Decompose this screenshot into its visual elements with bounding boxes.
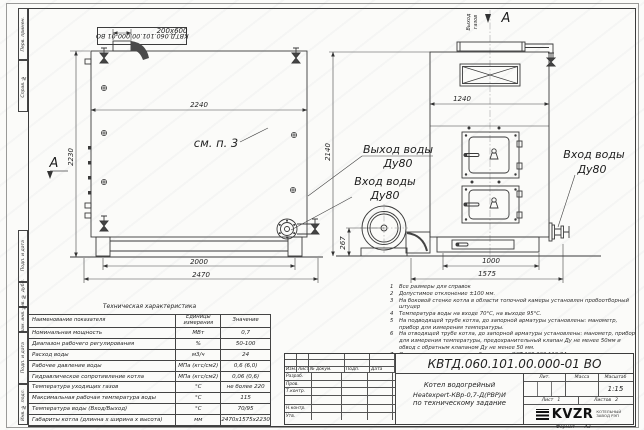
title-block: КВТД.060.101.00.000-01 ВО Изм.Лист № док… [284,353,634,425]
note-item: 3На боковой стенке котла в области топоч… [390,298,636,312]
gas-outlet-label-2: газов [473,15,479,29]
dim-2470: 2470 [192,271,210,279]
fan-icon [360,204,430,256]
dim-2000: 2000 [190,258,208,266]
role-row-utv: Утв. [285,413,395,421]
spec-row: Гидравлическое сопротивление котлаМПа (к… [29,372,271,383]
lower-door-icon [462,186,522,223]
spec-table-title: Техническая характеристика [28,302,271,314]
upper-door-icon [462,132,522,178]
dim-1000: 1000 [482,257,500,265]
bolt-dots [468,127,501,184]
dimensions [70,29,575,283]
dim-2230: 2230 [67,148,75,166]
spec-row: Рабочее давление водыМПа (кгс/см2)0,6 (6… [29,361,271,372]
revision-header-row: Изм.Лист № докум.Подп. Дата [285,367,395,374]
scale-value: 1:15 [599,382,632,396]
section-arrow-left [47,171,53,179]
base-frame [437,237,539,252]
water-in-right-dn: Ду80 [576,163,606,176]
water-in-left-dn: Ду80 [369,189,399,202]
section-arrow-top [485,14,491,23]
dim-1240: 1240 [453,95,471,103]
role-row-razrab: Разраб. [285,373,395,381]
revision-table: Изм.Лист № докум.Подп. Дата Разраб. Пров… [285,354,395,424]
flange-icon [277,219,319,239]
section-letter-top: А [501,11,511,26]
role-row-tkontr: Т.контр. [285,388,395,396]
see-note-label: см. п. 3 [194,136,238,150]
notes-list: 1Все размеры для справок 2Допустимое отк… [390,284,636,358]
tap-icon [547,53,555,66]
kvzr-logo-mark-icon [536,409,549,420]
dim-nozzle: 200х600 [157,27,188,35]
water-in-left-leader [291,197,352,230]
note-item: 4Температура воды на входе 70°С, на выхо… [390,311,636,318]
doc-number: КВТД.060.101.00.000-01 ВО [395,354,633,374]
gas-outlet-label-1: Выход [466,13,472,30]
note-item: 6На отводящей трубе котла, до запорной а… [390,331,636,351]
spec-row: Расход водым3/ч24 [29,350,271,361]
spec-row: Диапазон рабочего регулирования%50-100 [29,339,271,350]
dim-1575: 1575 [478,270,496,278]
spec-row: Температура уходящих газов°Сне более 220 [29,382,271,393]
water-in-left-label: Вход воды [354,175,416,188]
note-item: 2Допустимое отклонение ±100 мм. [390,291,636,298]
company-logo: KVZR КОТЕЛЬНЫЙЗАВОД РЭП [524,405,633,423]
title-block-right: Лит. Масса Масштаб 1:15 Лист1 Листов2 KV… [523,374,633,424]
water-in-right-leader [558,175,575,227]
see-note-leader [240,128,268,142]
kvzr-logo-text: KVZR [552,407,594,422]
spec-header-row: Наименование показателяЕдиницы измерения… [29,315,271,328]
inlet-flange-icon [549,223,569,241]
spec-row: Номинальная мощностьМВт0,7 [29,328,271,339]
water-out-dn: Ду80 [382,157,412,170]
drawing-sheet: Перв. примен. Справ. № Подп. и дата Инв.… [0,0,644,430]
spec-row: Габариты котла (длинна х ширина х высота… [29,415,271,426]
note-item: 1Все размеры для справок [390,284,636,291]
note-item: 5На подводящей трубе котла, до запорной … [390,318,636,332]
role-row-nkontr: Н.контр. [285,405,395,413]
flue-elbow-icon [131,41,149,60]
water-out-label: Выход воды [363,143,433,156]
dim-2240: 2240 [190,101,208,109]
product-title: Котел водогрейный Heatexpert-КВр-0,7-Д(Р… [395,374,523,424]
spec-row: Максимальная рабочая температура воды°С1… [29,393,271,404]
front-view [336,10,601,260]
role-row-prov: Пров. [285,381,395,389]
format-label: ФорматА3 [556,425,636,430]
spec-table: Техническая характеристика Наименование … [28,302,271,426]
water-in-right-label: Вход воды [563,148,625,161]
spec-row: Температура воды (Вход/Выход)°С70/95 [29,404,271,415]
dim-267: 267 [339,236,347,250]
dim-2140: 2140 [324,143,332,161]
section-letter-left: А [49,156,59,171]
